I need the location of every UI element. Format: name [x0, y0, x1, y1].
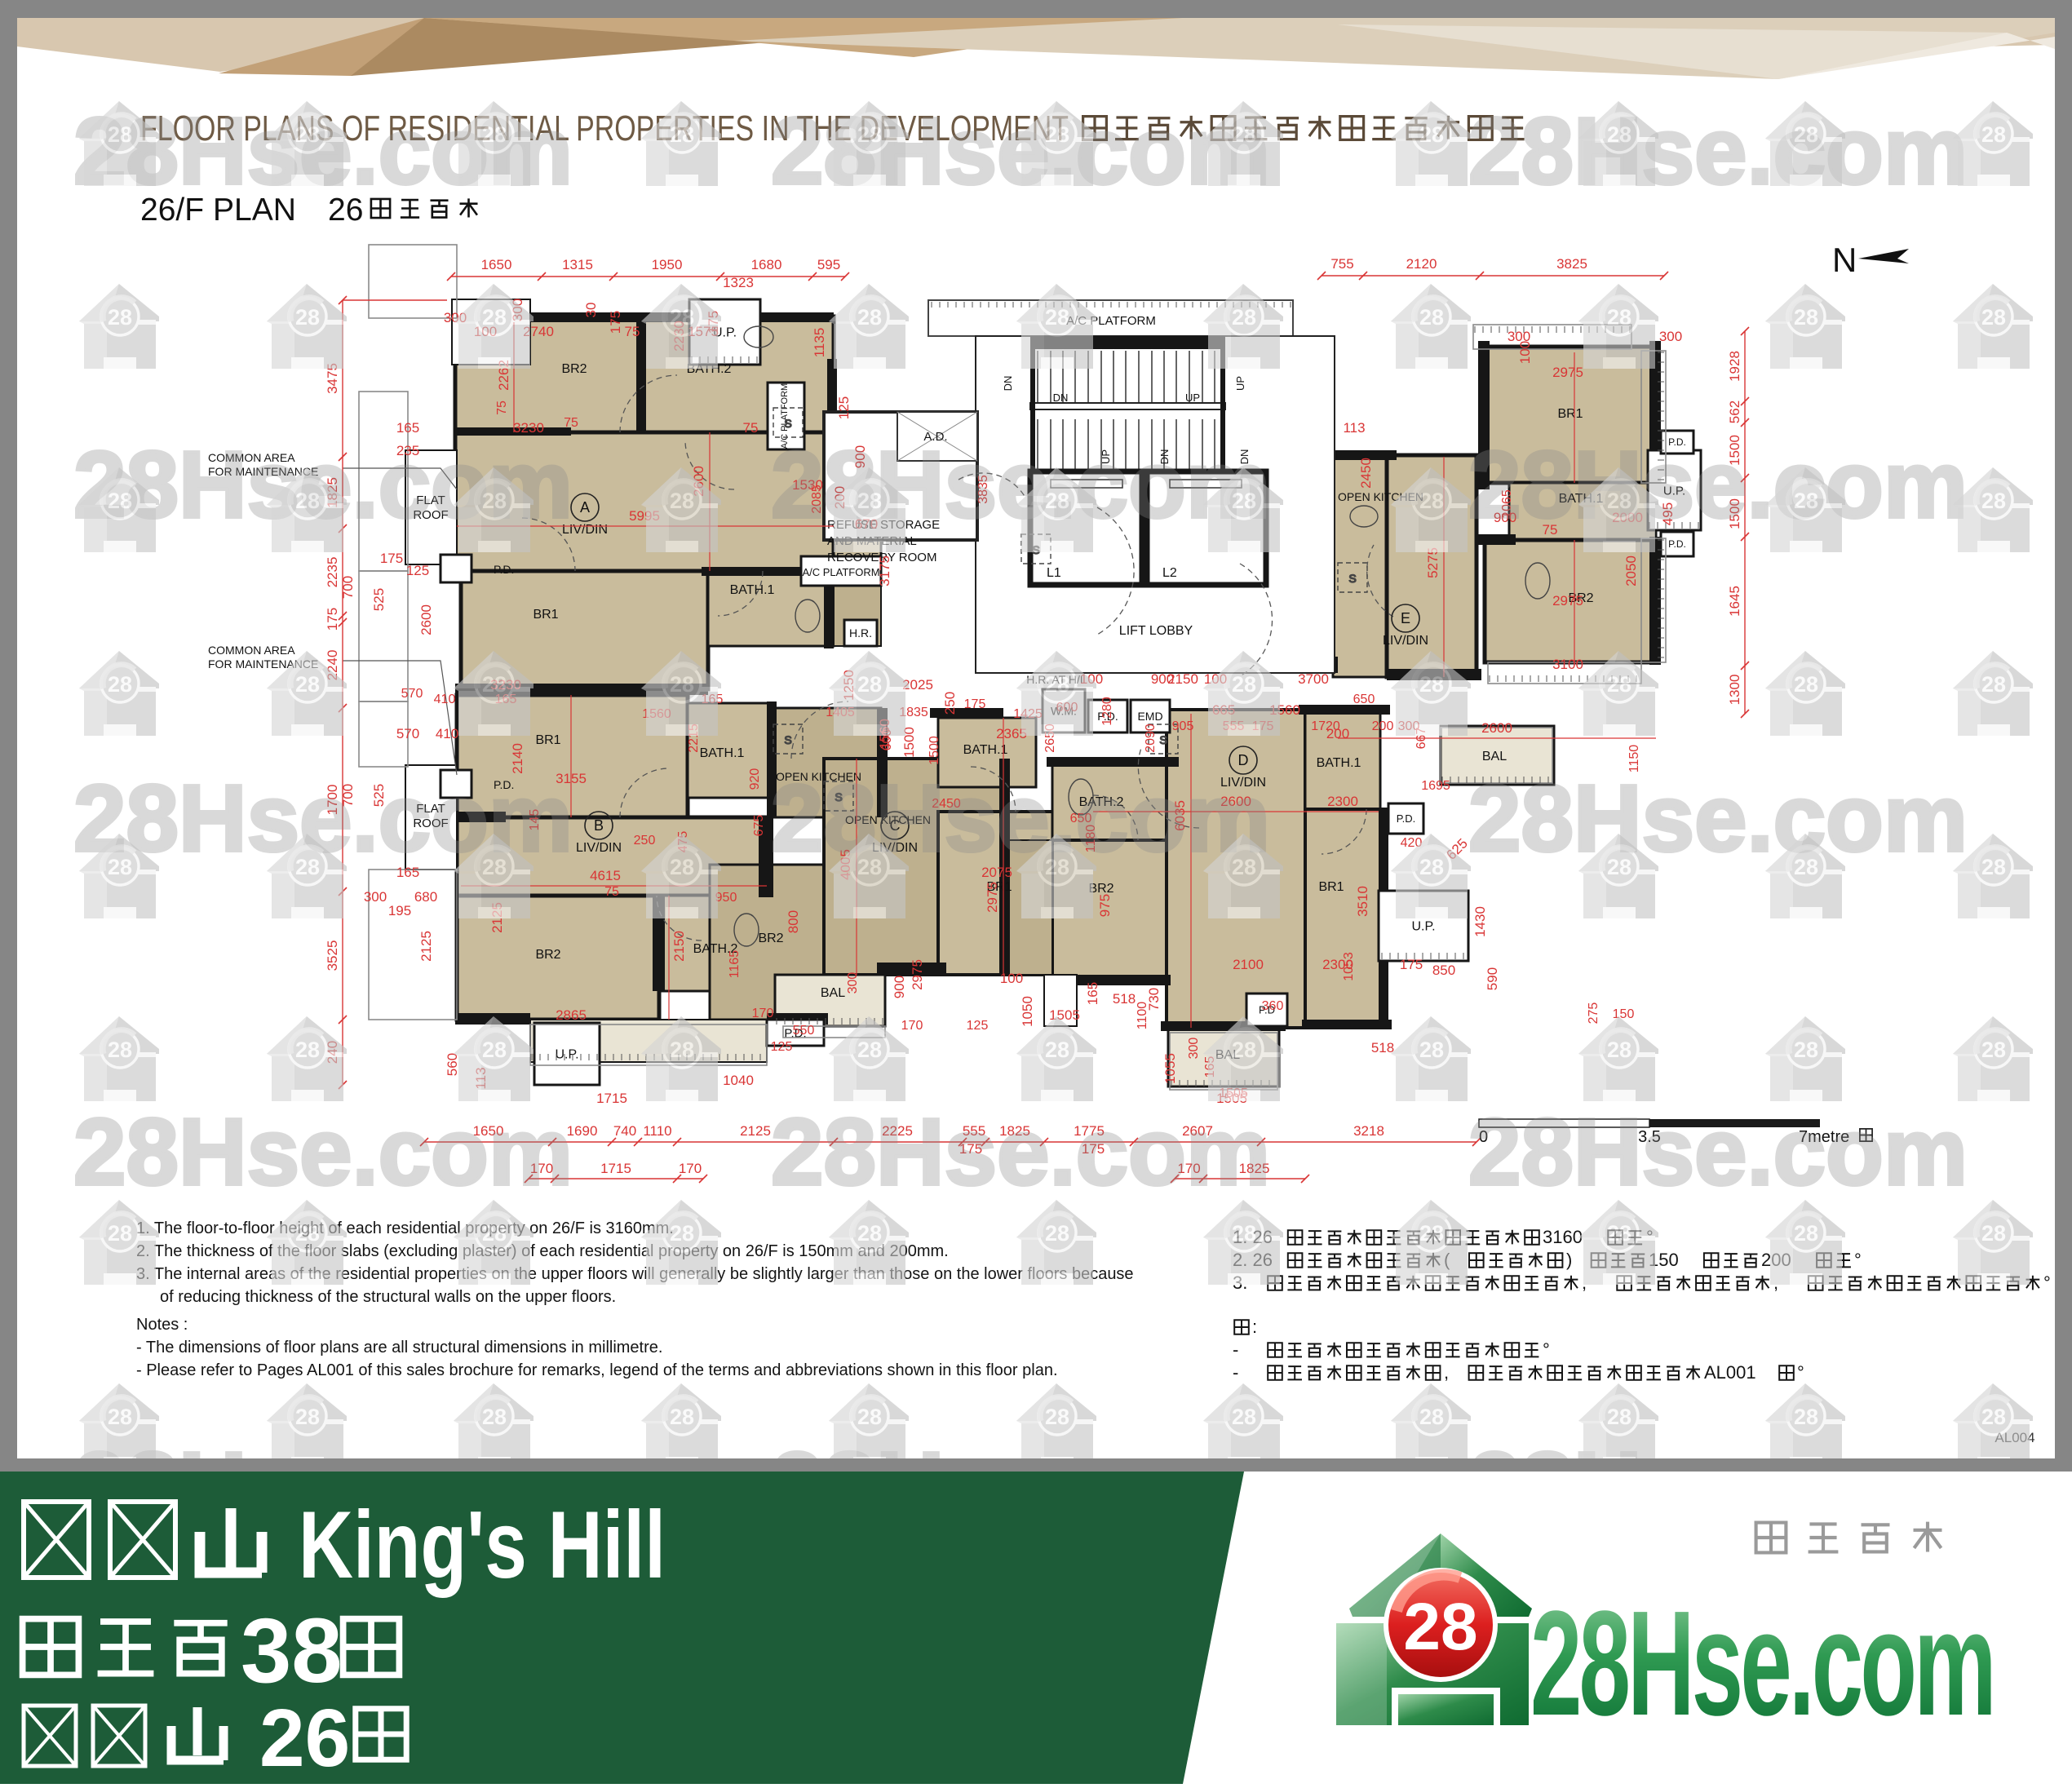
svg-text:S: S: [1159, 733, 1167, 746]
svg-text:900: 900: [892, 976, 907, 998]
svg-text:170: 170: [901, 1019, 923, 1033]
svg-text:EMD: EMD: [1137, 710, 1162, 723]
svg-text:920: 920: [748, 768, 762, 790]
svg-text:3525: 3525: [325, 940, 340, 971]
svg-text:BR2: BR2: [561, 362, 587, 376]
svg-text:,: ,: [1444, 1362, 1449, 1383]
svg-text:175: 175: [1400, 957, 1423, 972]
svg-text:170: 170: [679, 1161, 702, 1176]
svg-text:2975: 2975: [1552, 365, 1583, 380]
svg-text:BR2: BR2: [758, 932, 783, 945]
svg-text:28Hse.com: 28Hse.com: [1468, 98, 1966, 204]
svg-text:1280: 1280: [1100, 697, 1114, 726]
svg-text:2600: 2600: [418, 604, 434, 635]
svg-text:410: 410: [434, 693, 456, 706]
svg-text:1430: 1430: [1472, 906, 1488, 937]
svg-text:BAL: BAL: [1482, 750, 1507, 763]
svg-text:3510: 3510: [1355, 886, 1370, 917]
svg-text::: :: [1252, 1317, 1257, 1337]
svg-text:590: 590: [1485, 967, 1500, 990]
svg-text:2. The thickness of the floor: 2. The thickness of the floor slabs (exc…: [136, 1242, 949, 1260]
svg-text:2450: 2450: [1358, 458, 1374, 489]
svg-text:BR1: BR1: [1557, 407, 1583, 421]
svg-text:°: °: [1854, 1250, 1862, 1270]
svg-text:125: 125: [771, 1040, 793, 1054]
svg-text:P.D.: P.D.: [1668, 538, 1686, 550]
svg-text:2975: 2975: [985, 882, 1000, 913]
svg-text:175: 175: [964, 697, 986, 711]
svg-text:113: 113: [1343, 420, 1365, 436]
svg-text:28Hse.com: 28Hse.com: [73, 1099, 571, 1205]
svg-text:1100: 1100: [1136, 1002, 1149, 1030]
svg-text:P.D.: P.D.: [494, 563, 514, 576]
svg-text:75: 75: [564, 416, 578, 430]
svg-text:28Hse.com: 28Hse.com: [1468, 1099, 1966, 1205]
svg-text:680: 680: [414, 889, 437, 905]
svg-text:300: 300: [1187, 1038, 1201, 1060]
svg-text:100: 100: [1000, 971, 1023, 986]
svg-text:75: 75: [625, 324, 640, 339]
svg-text:1928: 1928: [1727, 351, 1742, 382]
svg-text:2150: 2150: [1167, 671, 1198, 687]
svg-text:250: 250: [634, 834, 656, 848]
svg-text:Notes :: Notes :: [136, 1316, 188, 1334]
svg-text:165: 165: [1085, 982, 1100, 1005]
svg-text:30: 30: [583, 303, 599, 318]
svg-text:1650: 1650: [481, 257, 512, 272]
svg-text:2050: 2050: [1623, 555, 1639, 586]
svg-text:740: 740: [613, 1123, 636, 1139]
svg-text:905: 905: [1172, 719, 1194, 733]
svg-text:1720: 1720: [1311, 719, 1340, 733]
svg-text:°: °: [1797, 1362, 1804, 1383]
svg-text:125: 125: [836, 396, 852, 419]
svg-text:755: 755: [1330, 256, 1353, 272]
svg-text:LIFT LOBBY: LIFT LOBBY: [1119, 624, 1193, 638]
svg-text:1040: 1040: [723, 1073, 754, 1088]
svg-text:100: 100: [1517, 341, 1533, 364]
svg-text:BR1: BR1: [533, 608, 558, 622]
svg-text:2150: 2150: [671, 931, 687, 962]
svg-text:125: 125: [967, 1019, 989, 1033]
svg-text:- Please refer to Pages AL00: - Please refer to Pages AL001 of this sa…: [136, 1361, 1058, 1379]
svg-text:1135: 1135: [812, 328, 827, 358]
svg-text:BR2: BR2: [535, 948, 560, 962]
svg-text:°: °: [2043, 1272, 2051, 1293]
svg-text:1645: 1645: [1727, 586, 1742, 617]
svg-text:UP: UP: [1185, 392, 1200, 404]
svg-text:2865: 2865: [556, 1007, 587, 1023]
svg-text:DN: DN: [1053, 392, 1069, 404]
svg-text:2120: 2120: [1406, 256, 1437, 272]
svg-text:28Hse.com: 28Hse.com: [1530, 1581, 1994, 1747]
svg-text:P.D.: P.D.: [1397, 812, 1416, 825]
svg-text:1110: 1110: [643, 1123, 671, 1139]
svg-text:650: 650: [1353, 693, 1375, 706]
svg-text:1055: 1055: [1162, 1053, 1178, 1084]
svg-text:1300: 1300: [1727, 675, 1742, 706]
svg-text:1165: 1165: [728, 950, 742, 979]
svg-text:King's Hill: King's Hill: [299, 1491, 666, 1598]
svg-text:BAL: BAL: [821, 986, 845, 1000]
svg-text:125: 125: [406, 563, 429, 578]
svg-text:BATH.1: BATH.1: [1317, 756, 1361, 770]
svg-text:A/C PLATFORM: A/C PLATFORM: [802, 566, 879, 578]
svg-text:1715: 1715: [600, 1161, 631, 1176]
svg-text:1500: 1500: [928, 736, 941, 765]
svg-text:2090: 2090: [1144, 724, 1158, 753]
svg-text:518: 518: [1113, 991, 1136, 1007]
svg-text:LIV/DIN: LIV/DIN: [1383, 634, 1428, 648]
svg-text:A: A: [580, 499, 590, 516]
svg-text:175: 175: [608, 311, 623, 334]
svg-text:28Hse.com: 28Hse.com: [1468, 765, 1966, 871]
svg-text:26: 26: [259, 1693, 350, 1784]
svg-text:1053: 1053: [1342, 952, 1356, 981]
svg-text:300: 300: [1659, 329, 1682, 344]
svg-text:1323: 1323: [723, 275, 754, 290]
svg-text:562: 562: [1727, 401, 1742, 423]
svg-text:DN: DN: [1002, 376, 1014, 392]
svg-text:1. The floor-to-floor height: 1. The floor-to-floor height of each res…: [136, 1219, 674, 1237]
svg-text:UP: UP: [1234, 376, 1246, 391]
svg-text:): ): [1566, 1250, 1572, 1270]
svg-text:195: 195: [388, 903, 411, 918]
svg-text:LIV/DIN: LIV/DIN: [576, 841, 622, 855]
svg-text:975: 975: [1097, 894, 1113, 917]
svg-text:75: 75: [495, 401, 509, 415]
svg-text:175: 175: [325, 608, 340, 631]
svg-text:200: 200: [1372, 719, 1394, 733]
svg-text:2125: 2125: [418, 931, 434, 962]
svg-text:H.R.: H.R.: [849, 626, 872, 640]
svg-text:800: 800: [786, 910, 801, 933]
svg-text:300: 300: [846, 972, 860, 994]
svg-text:°: °: [1543, 1339, 1550, 1360]
svg-text:675: 675: [752, 815, 766, 837]
svg-text:3218: 3218: [1353, 1123, 1384, 1139]
svg-text:1050: 1050: [1020, 996, 1035, 1027]
svg-text:300: 300: [364, 889, 387, 905]
svg-text:2600: 2600: [1481, 720, 1512, 736]
svg-text:S: S: [784, 733, 791, 746]
svg-text:560: 560: [445, 1053, 460, 1076]
svg-text:BATH.1: BATH.1: [963, 743, 1008, 757]
svg-text:300: 300: [1508, 329, 1530, 344]
svg-text:of reducing thickness of the s: of reducing thickness of the structural …: [160, 1288, 616, 1306]
svg-text:-: -: [1233, 1362, 1238, 1383]
svg-text:38: 38: [241, 1600, 343, 1702]
svg-text:1715: 1715: [596, 1091, 627, 1106]
svg-text:410: 410: [436, 726, 458, 741]
svg-text:850: 850: [1432, 963, 1455, 978]
svg-text:AL001: AL001: [1704, 1362, 1756, 1383]
svg-text:S: S: [1348, 572, 1356, 585]
svg-text:275: 275: [1587, 1002, 1600, 1025]
svg-text:550: 550: [793, 1024, 815, 1038]
svg-text:3100: 3100: [1552, 657, 1583, 672]
svg-text:S: S: [784, 417, 791, 430]
svg-text:N: N: [1832, 241, 1857, 279]
svg-text:1950: 1950: [652, 257, 683, 272]
svg-text:2235: 2235: [325, 557, 340, 588]
svg-text:2975: 2975: [1552, 593, 1583, 609]
svg-text:28Hse.com: 28Hse.com: [771, 765, 1268, 871]
svg-text:518: 518: [1371, 1040, 1394, 1056]
svg-text:570: 570: [396, 726, 419, 741]
svg-text:3700: 3700: [1298, 671, 1329, 687]
svg-text:28Hse.com: 28Hse.com: [771, 1099, 1268, 1205]
svg-text:250: 250: [942, 692, 958, 715]
svg-text:175: 175: [380, 551, 403, 566]
svg-text:1690: 1690: [567, 1123, 598, 1139]
svg-text:525: 525: [371, 588, 387, 611]
svg-text:28Hse.com: 28Hse.com: [1468, 432, 1966, 538]
svg-text:950: 950: [715, 891, 737, 905]
svg-text:3160: 3160: [1543, 1227, 1583, 1247]
svg-text:BR1: BR1: [535, 733, 560, 747]
svg-text:U.P.: U.P.: [555, 1048, 578, 1062]
svg-text:COMMON AREA: COMMON AREA: [208, 644, 295, 657]
svg-text:U.P.: U.P.: [1411, 920, 1435, 934]
svg-text:B: B: [594, 817, 604, 834]
svg-text:75: 75: [743, 420, 759, 436]
svg-text:570: 570: [401, 687, 423, 701]
svg-text:3825: 3825: [1556, 256, 1587, 272]
svg-text:28: 28: [1403, 1590, 1477, 1664]
svg-text:L2: L2: [1162, 566, 1177, 580]
svg-text:595: 595: [817, 257, 840, 272]
svg-text:L1: L1: [1047, 566, 1061, 580]
svg-text:1695: 1695: [1421, 779, 1450, 793]
svg-text:- The dimensions of floor pl: - The dimensions of floor plans are all …: [136, 1339, 662, 1356]
svg-text:2125: 2125: [740, 1123, 771, 1139]
svg-text:4615: 4615: [590, 868, 621, 883]
svg-text:3175: 3175: [877, 555, 892, 586]
svg-text:2300: 2300: [1327, 794, 1358, 809]
svg-text:75: 75: [604, 885, 619, 899]
svg-text:700: 700: [340, 576, 356, 599]
svg-text:2975: 2975: [910, 959, 925, 990]
svg-text:1680: 1680: [751, 257, 782, 272]
svg-text:360: 360: [1262, 999, 1284, 1013]
svg-text:-: -: [1233, 1339, 1238, 1360]
svg-text:BATH.1: BATH.1: [700, 746, 745, 760]
svg-text:1315: 1315: [562, 257, 593, 272]
svg-text:BATH.1: BATH.1: [730, 583, 775, 597]
svg-text:170: 170: [752, 1007, 774, 1020]
svg-text:BR1: BR1: [1318, 880, 1344, 894]
svg-text:2100: 2100: [1233, 957, 1264, 972]
svg-text:E: E: [1401, 610, 1410, 626]
